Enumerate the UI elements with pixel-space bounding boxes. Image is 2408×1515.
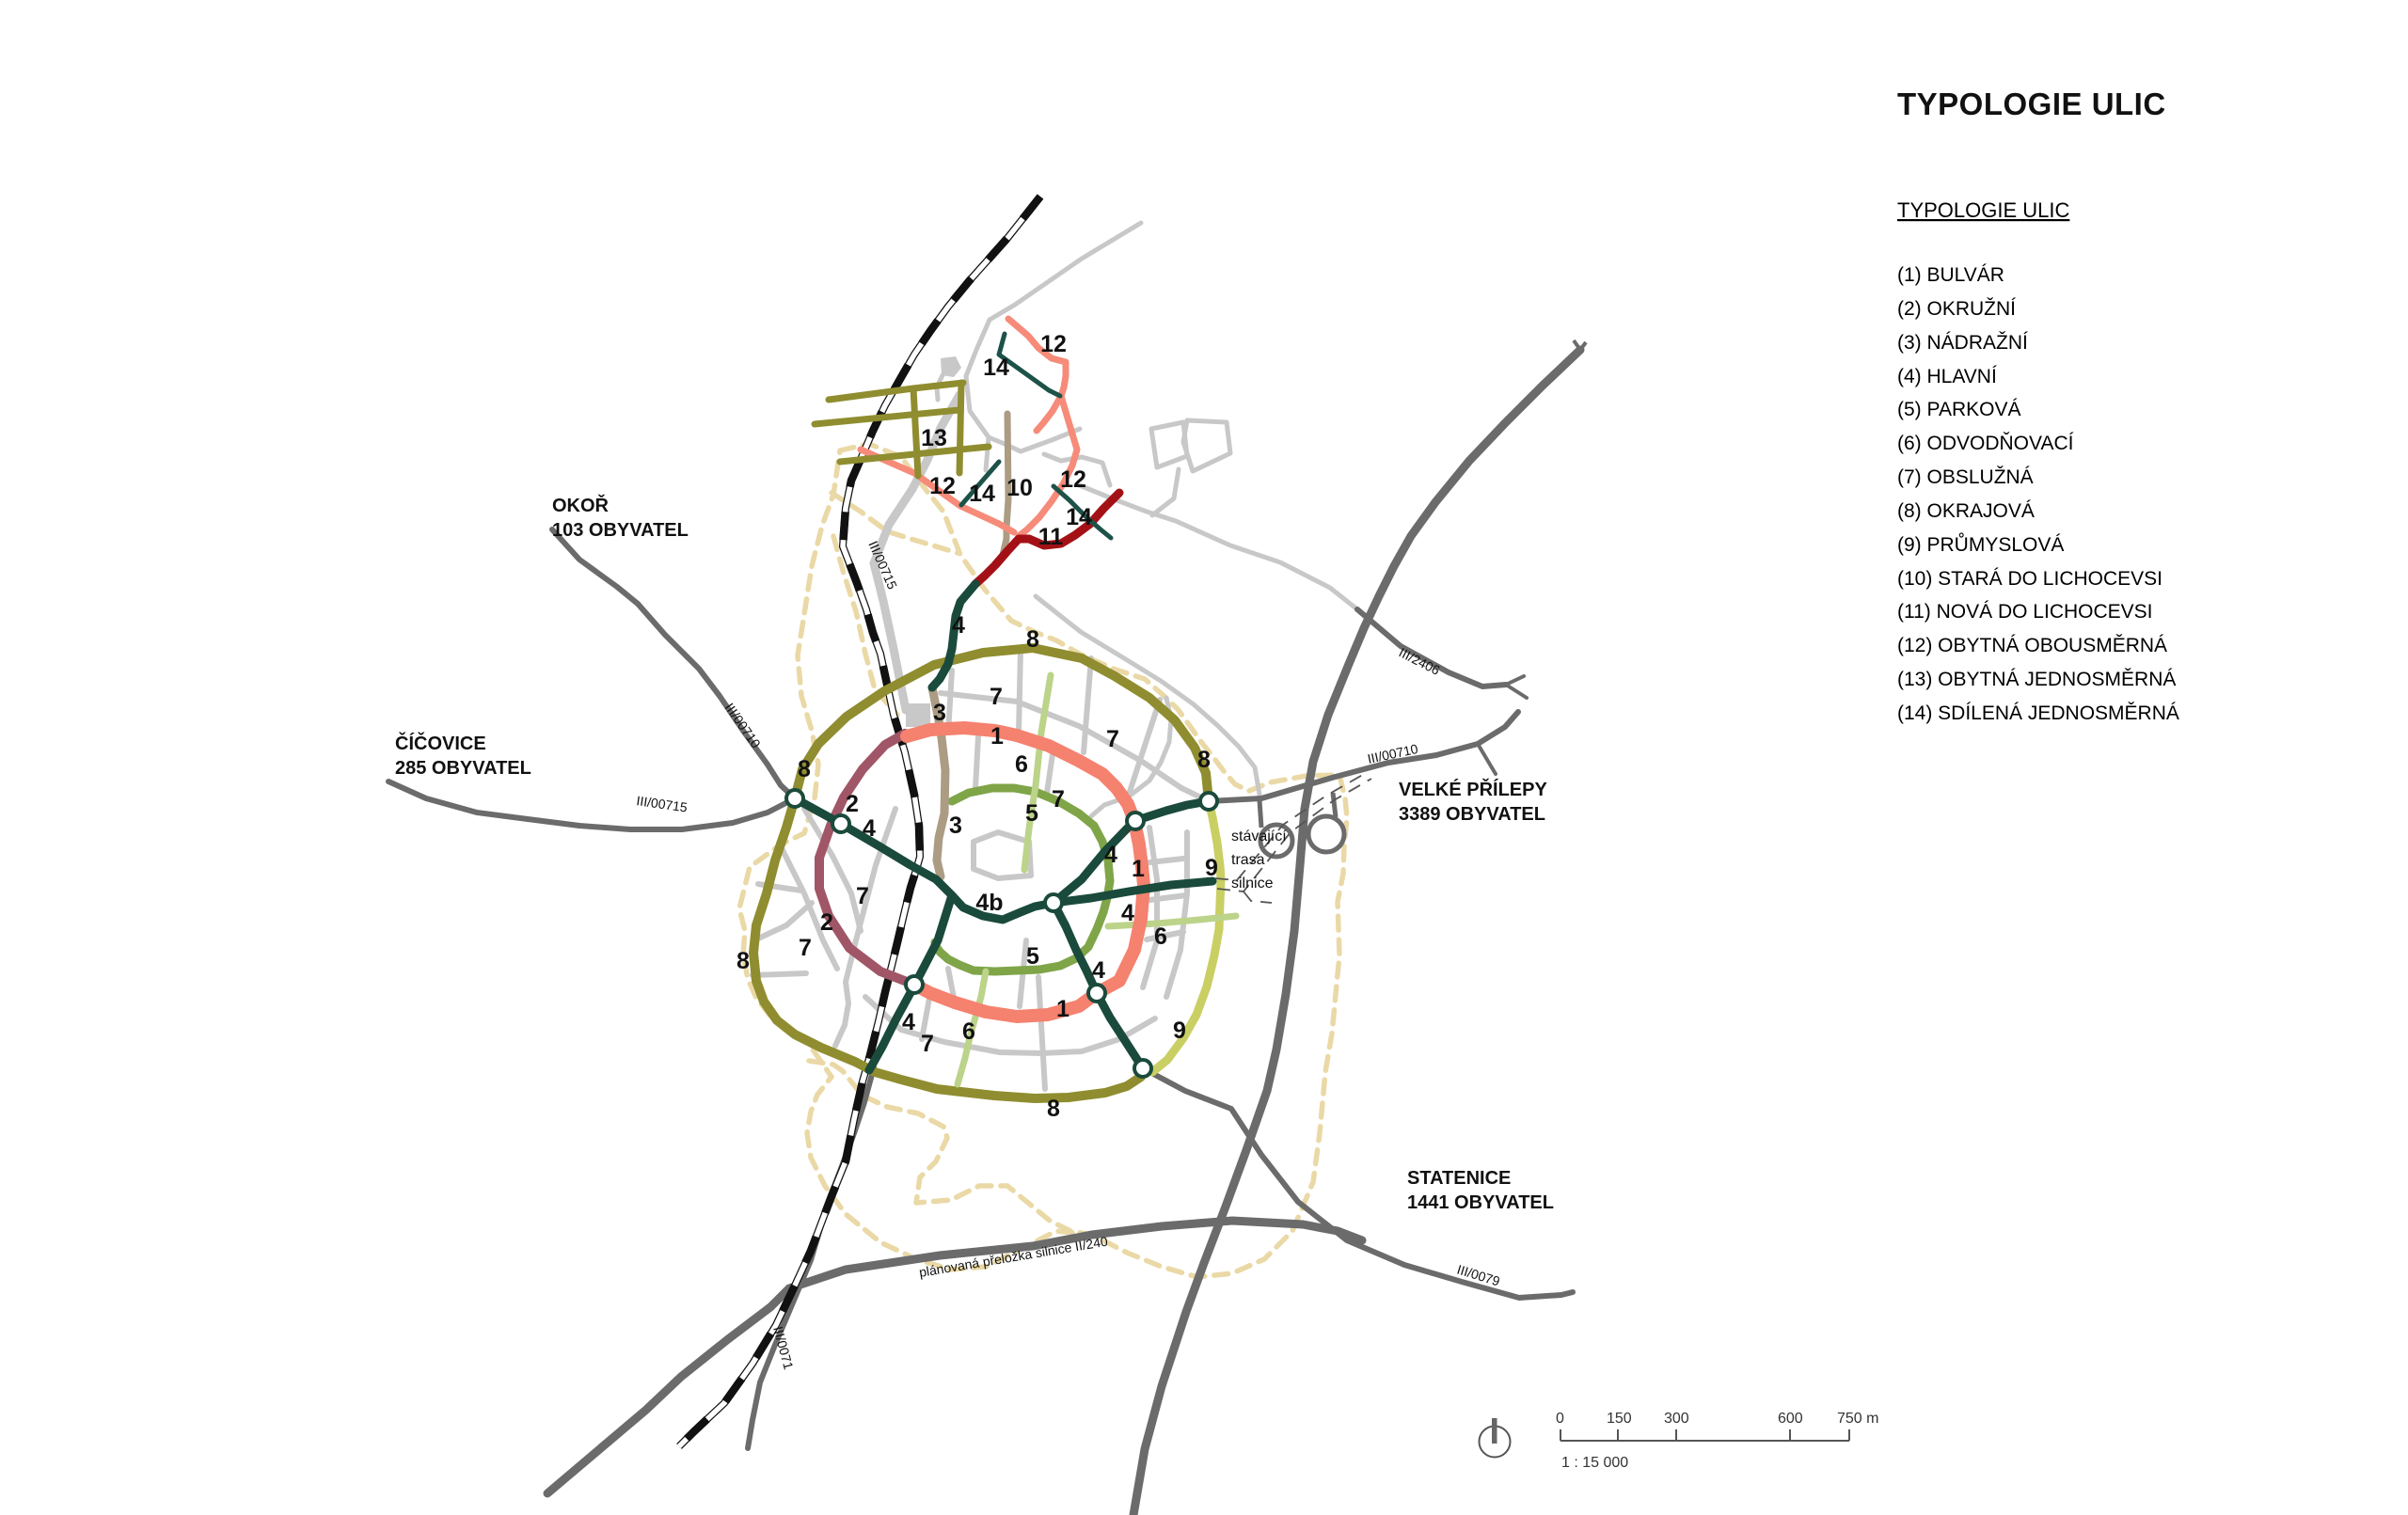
svg-text:750 m: 750 m (1837, 1411, 1878, 1427)
svg-text:2: 2 (820, 909, 833, 936)
svg-text:9: 9 (1173, 1018, 1186, 1044)
svg-text:4: 4 (1092, 957, 1105, 984)
svg-text:6: 6 (1154, 923, 1167, 950)
svg-text:3389 OBYVATEL: 3389 OBYVATEL (1399, 804, 1545, 825)
svg-text:(8) OKRAJOVÁ: (8) OKRAJOVÁ (1897, 500, 2035, 522)
svg-text:(12) OBYTNÁ OBOUSMĚRNÁ: (12) OBYTNÁ OBOUSMĚRNÁ (1897, 635, 2167, 656)
svg-text:(6) ODVODŇOVACÍ: (6) ODVODŇOVACÍ (1897, 433, 2074, 454)
svg-text:10: 10 (1006, 475, 1033, 501)
svg-text:(3) NÁDRAŽNÍ: (3) NÁDRAŽNÍ (1897, 332, 2028, 354)
svg-text:7: 7 (1106, 726, 1119, 752)
svg-text:4: 4 (952, 612, 965, 639)
svg-text:9: 9 (1205, 855, 1218, 881)
svg-text:(2) OKRUŽNÍ: (2) OKRUŽNÍ (1897, 298, 2016, 320)
svg-text:OKOŘ: OKOŘ (552, 494, 610, 516)
svg-text:VELKÉ PŘÍLEPY: VELKÉ PŘÍLEPY (1399, 778, 1547, 800)
svg-text:(1) BULVÁR: (1) BULVÁR (1897, 264, 2004, 286)
svg-text:6: 6 (1015, 751, 1028, 778)
svg-text:14: 14 (983, 355, 1009, 381)
svg-text:8: 8 (1026, 626, 1039, 653)
svg-text:103 OBYVATEL: 103 OBYVATEL (552, 520, 689, 541)
svg-text:(14) SDÍLENÁ JEDNOSMĚRNÁ: (14) SDÍLENÁ JEDNOSMĚRNÁ (1897, 702, 2179, 724)
svg-text:11: 11 (1038, 524, 1064, 550)
svg-text:silnice: silnice (1231, 876, 1274, 892)
svg-text:0: 0 (1556, 1411, 1564, 1427)
svg-text:4: 4 (902, 1009, 915, 1035)
svg-text:(4) HLAVNÍ: (4) HLAVNÍ (1897, 366, 1997, 387)
svg-text:TYPOLOGIE ULIC: TYPOLOGIE ULIC (1897, 198, 2069, 222)
svg-text:14: 14 (1066, 504, 1092, 530)
svg-text:2: 2 (846, 791, 859, 817)
svg-text:8: 8 (737, 948, 750, 974)
svg-text:1441 OBYVATEL: 1441 OBYVATEL (1407, 1192, 1554, 1213)
svg-text:4: 4 (1104, 842, 1117, 868)
svg-text:300: 300 (1664, 1411, 1689, 1427)
svg-text:trasa: trasa (1231, 852, 1265, 868)
svg-text:285 OBYVATEL: 285 OBYVATEL (395, 758, 531, 779)
svg-text:7: 7 (1052, 786, 1065, 813)
svg-text:7: 7 (921, 1031, 934, 1057)
svg-text:stávající: stávající (1231, 829, 1287, 844)
svg-text:1: 1 (990, 723, 1004, 750)
svg-text:8: 8 (798, 756, 811, 782)
svg-text:(9) PRŮMYSLOVÁ: (9) PRŮMYSLOVÁ (1897, 533, 2064, 556)
svg-text:12: 12 (1040, 331, 1067, 357)
svg-text:4b: 4b (975, 890, 1003, 916)
svg-text:(7) OBSLUŽNÁ: (7) OBSLUŽNÁ (1897, 466, 2034, 488)
svg-text:STATENICE: STATENICE (1407, 1168, 1511, 1189)
svg-text:3: 3 (933, 700, 946, 726)
svg-text:(5) PARKOVÁ: (5) PARKOVÁ (1897, 399, 2020, 420)
svg-text:7: 7 (856, 883, 869, 909)
svg-text:13: 13 (921, 425, 947, 451)
svg-text:(11) NOVÁ DO LICHOCEVSI: (11) NOVÁ DO LICHOCEVSI (1897, 601, 2153, 623)
svg-text:7: 7 (990, 684, 1003, 710)
svg-text:3: 3 (949, 813, 962, 839)
svg-text:12: 12 (929, 473, 956, 499)
svg-text:6: 6 (962, 1018, 975, 1045)
svg-text:8: 8 (1197, 747, 1211, 773)
svg-text:1: 1 (1132, 856, 1145, 882)
svg-text:(10) STARÁ DO LICHOCEVSI: (10) STARÁ DO LICHOCEVSI (1897, 568, 2162, 590)
svg-text:4: 4 (1121, 900, 1134, 926)
svg-text:5: 5 (1026, 943, 1039, 970)
svg-text:1 : 15 000: 1 : 15 000 (1561, 1455, 1628, 1471)
svg-text:600: 600 (1778, 1411, 1803, 1427)
svg-text:TYPOLOGIE ULIC: TYPOLOGIE ULIC (1897, 87, 2166, 121)
svg-text:14: 14 (969, 481, 995, 507)
svg-text:1: 1 (1056, 996, 1069, 1022)
svg-text:4: 4 (863, 815, 876, 842)
svg-text:5: 5 (1025, 800, 1038, 827)
svg-text:7: 7 (799, 935, 812, 961)
svg-text:150: 150 (1607, 1411, 1632, 1427)
svg-text:8: 8 (1047, 1096, 1060, 1122)
svg-text:(13) OBYTNÁ JEDNOSMĚRNÁ: (13) OBYTNÁ JEDNOSMĚRNÁ (1897, 669, 2176, 690)
svg-text:ČÍČOVICE: ČÍČOVICE (395, 732, 486, 754)
svg-text:12: 12 (1060, 466, 1086, 493)
